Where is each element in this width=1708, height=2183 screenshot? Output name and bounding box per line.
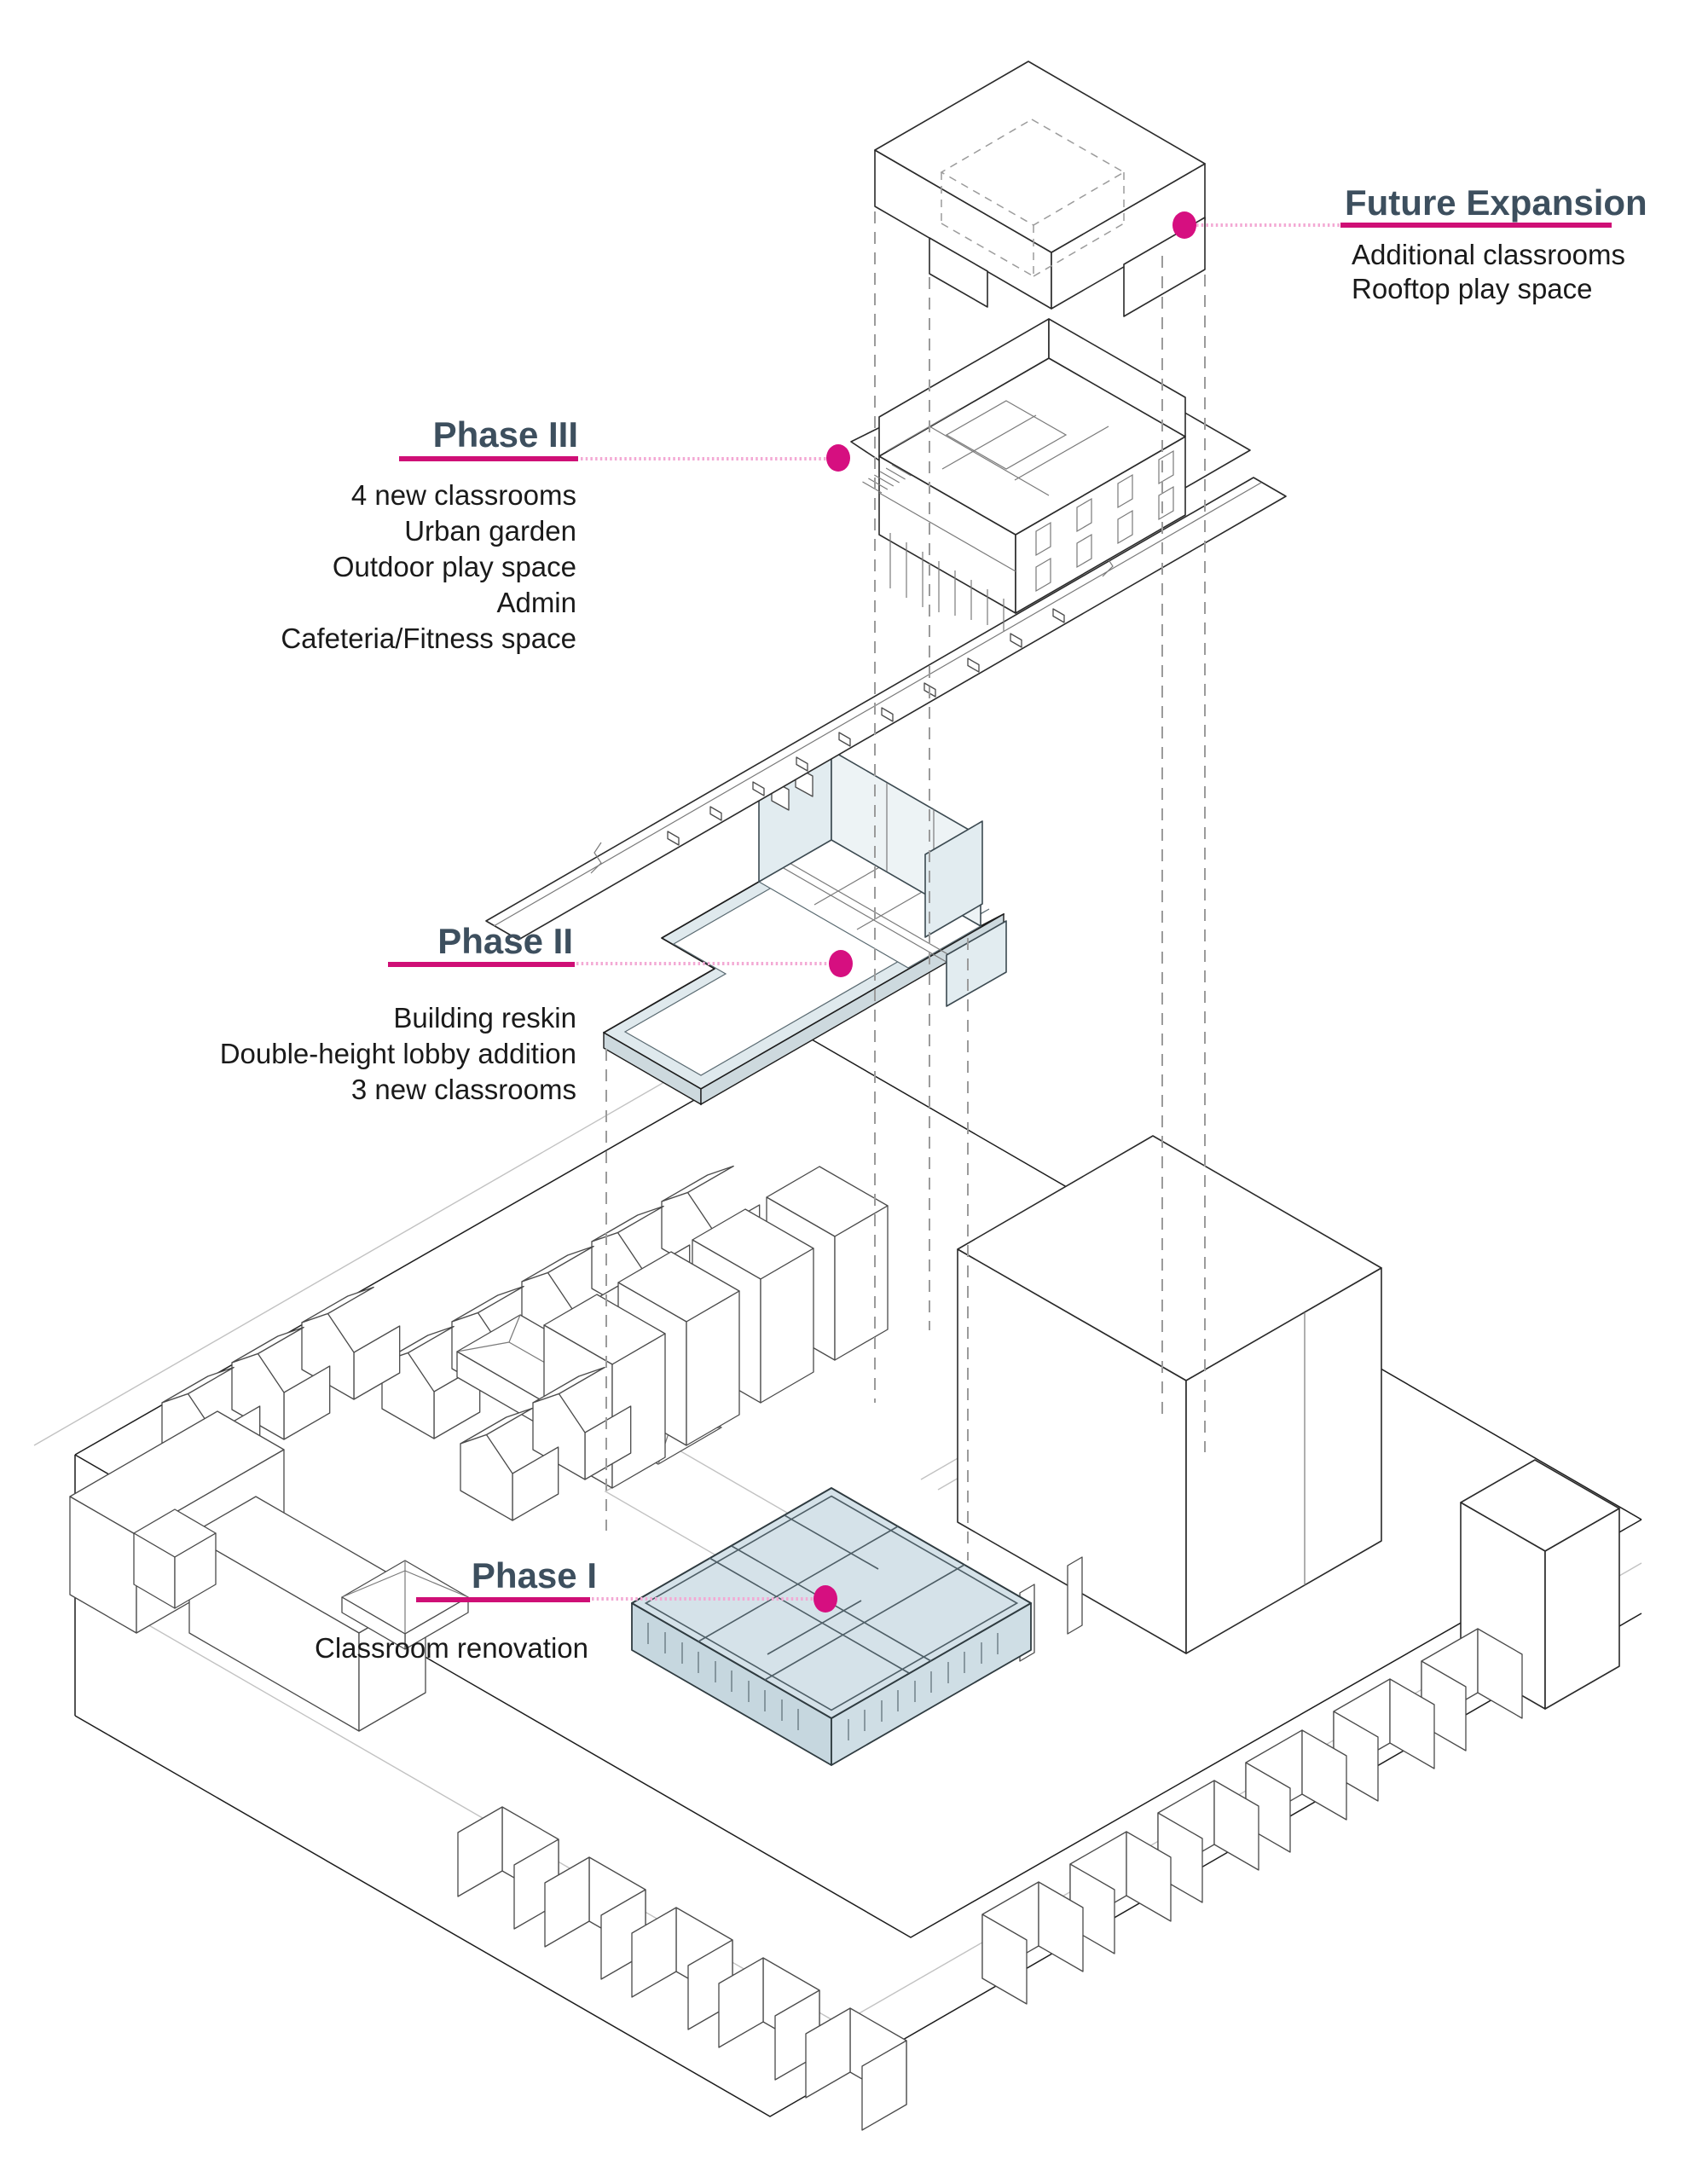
context-shells-bottom-right (982, 1629, 1522, 2004)
future-expansion-title: Future Expansion (1345, 182, 1647, 223)
context-shell (1246, 1730, 1346, 1852)
context-shell (632, 1908, 732, 2030)
context-shell (1421, 1629, 1522, 1751)
diagram-canvas: Future Expansion Additional classrooms R… (0, 0, 1708, 2183)
context-shell (719, 1958, 819, 2080)
phase3-line: Cafeteria/Fitness space (281, 622, 576, 654)
context-shell (1334, 1679, 1434, 1801)
phase3-line: Admin (496, 587, 576, 618)
context-l-building (70, 1411, 426, 1731)
phase3-title: Phase III (433, 414, 578, 455)
phase1-title: Phase I (472, 1555, 597, 1595)
phasing-diagram: Future Expansion Additional classrooms R… (0, 0, 1708, 2183)
context-big-building (958, 1136, 1381, 1653)
phase2-model (604, 750, 1006, 1104)
phase3-building (863, 319, 1186, 631)
context-shell (458, 1807, 559, 1929)
phase3-line: Urban garden (404, 515, 576, 547)
leader-dot-icon (813, 1585, 837, 1613)
phase2-line: Building reskin (393, 1002, 576, 1034)
context-shell (806, 2008, 906, 2130)
leader-dot-icon (826, 444, 850, 472)
phase3-line: Outdoor play space (333, 551, 576, 582)
future-expansion-massing (875, 61, 1205, 316)
context-thin-wall (1068, 1557, 1082, 1634)
future-expansion-line: Additional classrooms (1352, 239, 1625, 270)
leader-dot-icon (1172, 211, 1196, 239)
future-expansion-line: Rooftop play space (1352, 273, 1593, 304)
phase2-title: Phase II (437, 921, 573, 961)
label-phase3: Phase III 4 new classrooms Urban garden … (281, 414, 850, 654)
context-shell (982, 1882, 1083, 2004)
context-shell (1158, 1781, 1259, 1902)
site-context (34, 1028, 1641, 2130)
context-shells-bottom-center (458, 1807, 906, 2130)
label-future-expansion: Future Expansion Additional classrooms R… (1172, 182, 1647, 304)
phase1-line: Classroom renovation (315, 1632, 588, 1664)
context-shell (545, 1857, 646, 1979)
context-shell (1070, 1832, 1171, 1954)
phase2-line: Double-height lobby addition (220, 1038, 576, 1069)
phase2-line: 3 new classrooms (351, 1074, 576, 1105)
leader-dot-icon (829, 950, 853, 977)
phase3-line: 4 new classrooms (351, 479, 576, 511)
